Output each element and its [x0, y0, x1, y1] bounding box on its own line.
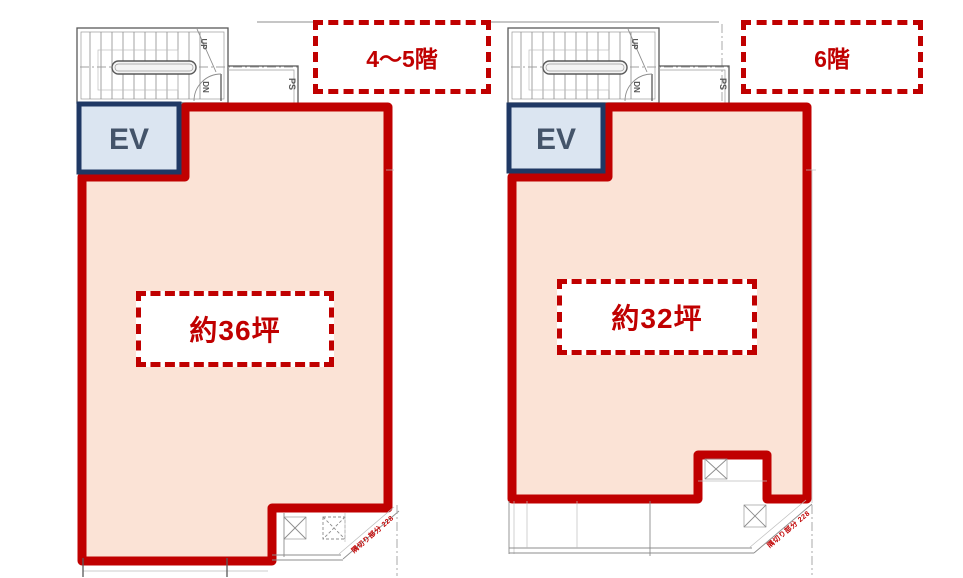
left-stair-down-label: DN: [201, 81, 210, 93]
left-elevator: EV: [79, 104, 179, 172]
left-floor-label-box: 4～5階: [313, 20, 491, 94]
right-area-label: 約32坪: [611, 297, 702, 337]
left-area-label: 約36坪: [189, 309, 280, 349]
right-elevator: EV: [509, 105, 603, 171]
right-area-label-box: 約32坪: [557, 279, 757, 355]
left-pipe-shaft-label: PS: [287, 78, 297, 90]
left-elevator-label: EV: [109, 123, 149, 156]
right-floor-label-box: 6階: [741, 20, 923, 94]
right-stair-down-label: DN: [632, 81, 641, 93]
left-pipe-shaft: PS: [228, 66, 298, 103]
right-pipe-shaft-label: PS: [718, 78, 728, 90]
right-stair-up-label: UP: [630, 38, 639, 50]
left-area-label-box: 約36坪: [136, 291, 334, 367]
left-floor-label: 4～5階: [366, 40, 438, 74]
floor-plan-canvas: UP DN PS EV: [0, 0, 963, 578]
right-pipe-shaft: PS: [659, 66, 729, 103]
left-corner-note: 隅切り部分 228: [349, 513, 395, 555]
right-elevator-label: EV: [536, 123, 576, 156]
right-floor-label: 6階: [814, 40, 850, 74]
left-stair-up-label: UP: [199, 38, 208, 50]
